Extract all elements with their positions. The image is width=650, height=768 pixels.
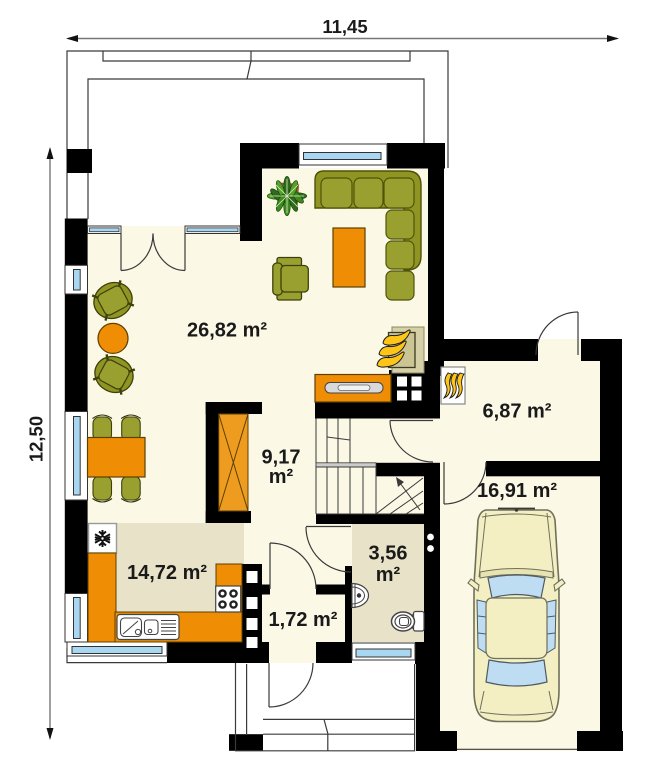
- svg-text:1,72 m²: 1,72 m²: [269, 609, 338, 631]
- svg-text:3,56: 3,56: [369, 543, 408, 565]
- svg-text:m²: m²: [269, 466, 294, 488]
- svg-text:16,91 m²: 16,91 m²: [477, 480, 557, 502]
- svg-text:14,72 m²: 14,72 m²: [127, 562, 207, 584]
- svg-text:26,82 m²: 26,82 m²: [187, 320, 267, 342]
- svg-text:11,45: 11,45: [322, 16, 367, 37]
- svg-text:6,87 m²: 6,87 m²: [483, 401, 552, 423]
- svg-text:12,50: 12,50: [26, 416, 47, 462]
- svg-text:m²: m²: [376, 564, 401, 586]
